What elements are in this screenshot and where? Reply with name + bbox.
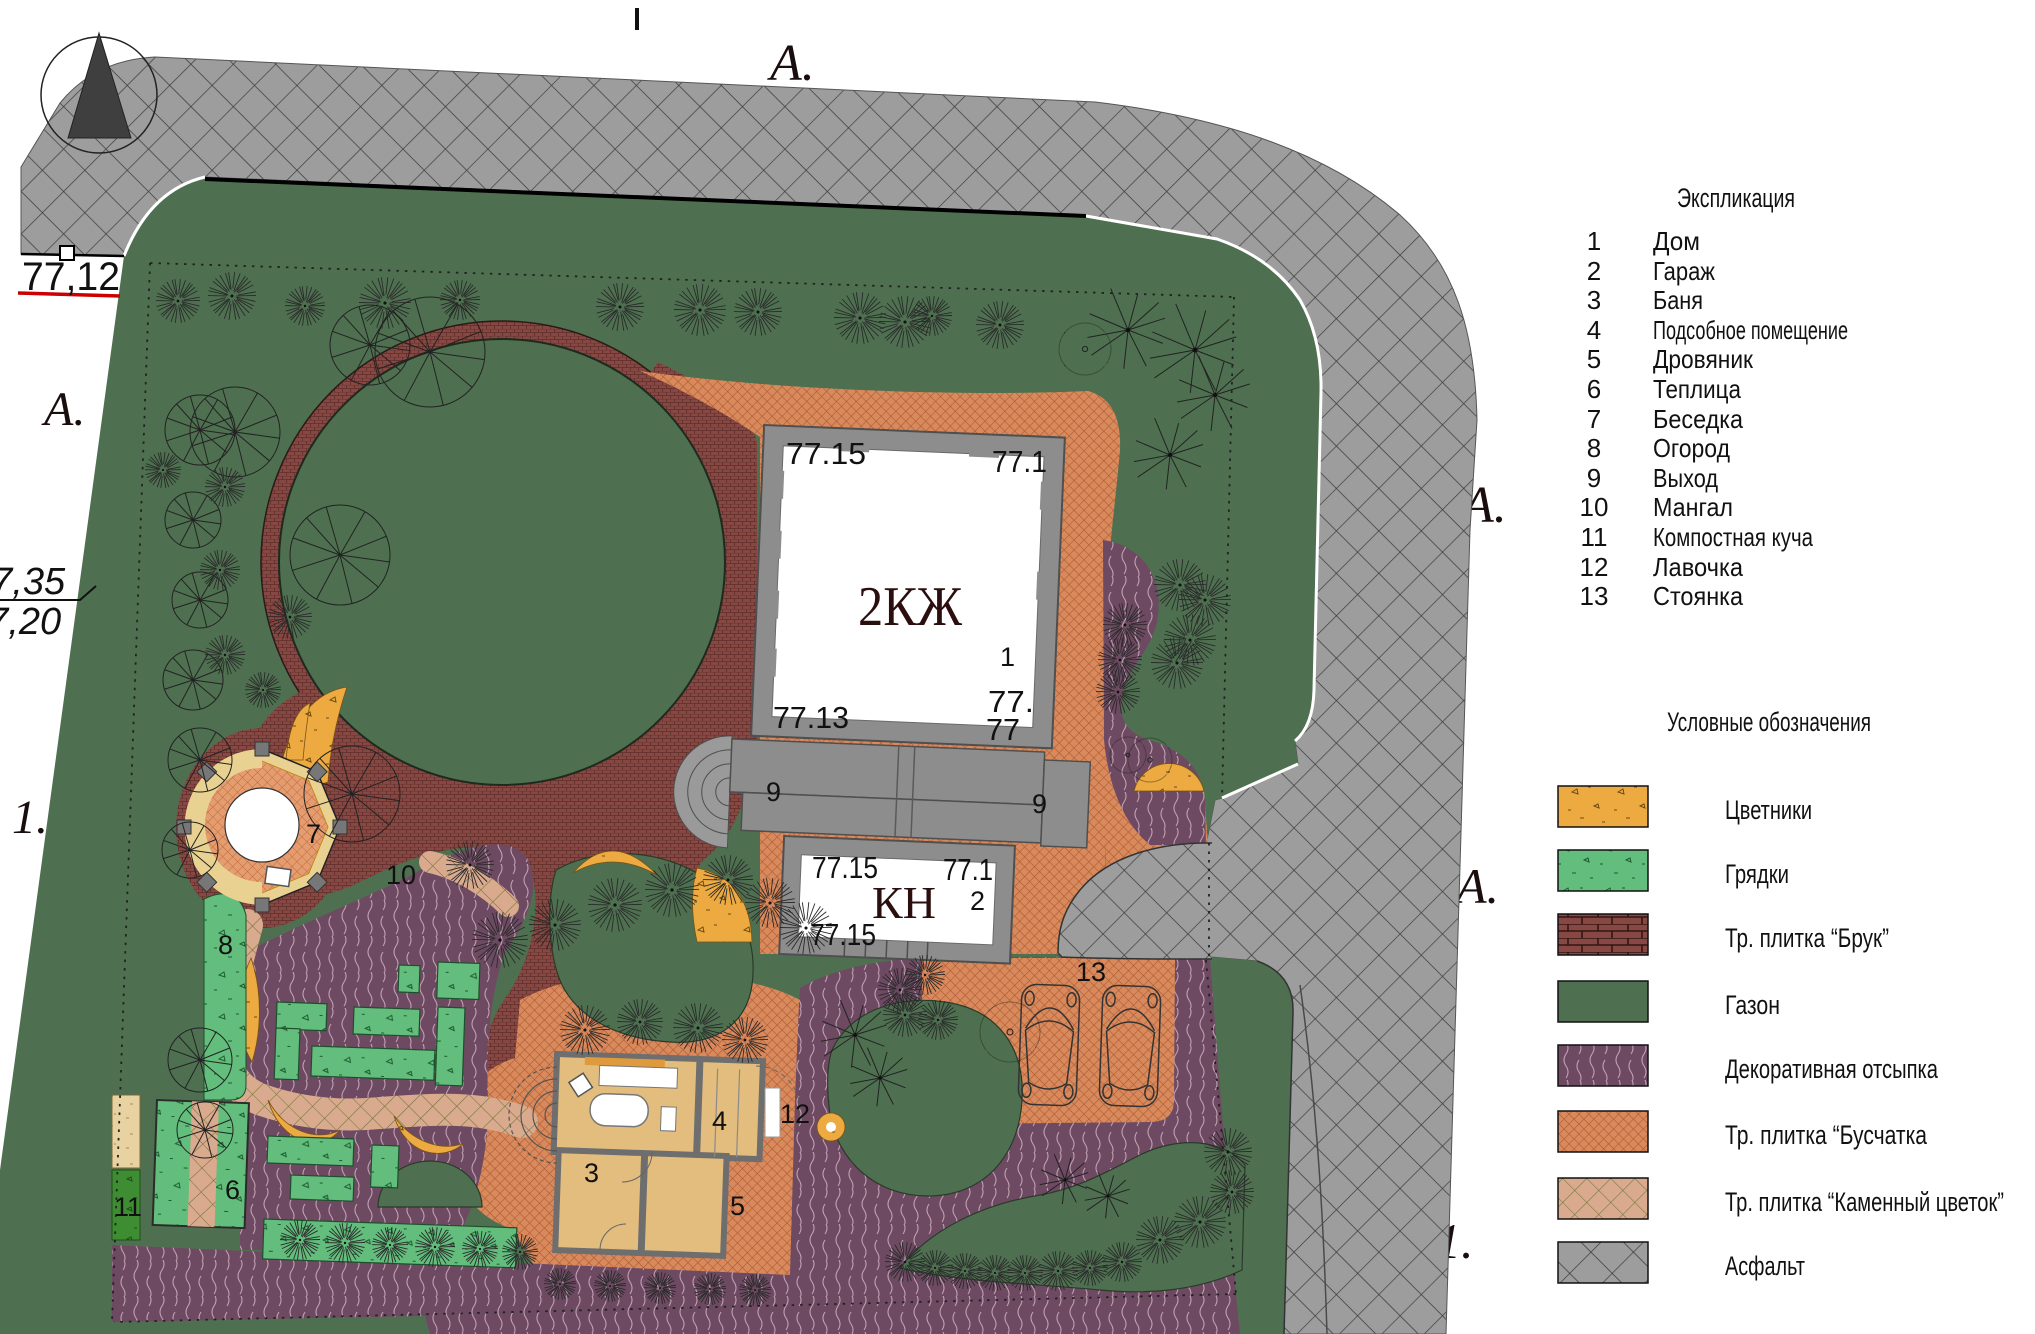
svg-text:Тр. плитка “Брук”: Тр. плитка “Брук”	[1725, 923, 1889, 953]
svg-text:А.: А.	[41, 383, 85, 436]
svg-text:Выход: Выход	[1653, 463, 1718, 493]
svg-text:Декоративная отсыпка: Декоративная отсыпка	[1725, 1054, 1939, 1084]
svg-text:77.15: 77.15	[812, 850, 878, 885]
svg-text:1.: 1.	[12, 791, 48, 844]
svg-text:Компостная куча: Компостная куча	[1653, 522, 1813, 552]
svg-text:Огород: Огород	[1653, 433, 1730, 463]
svg-text:Тр. плитка “Каменный цветок”: Тр. плитка “Каменный цветок”	[1725, 1187, 2004, 1217]
svg-text:Гараж: Гараж	[1653, 256, 1716, 286]
svg-text:Мангал: Мангал	[1653, 492, 1733, 522]
svg-text:6: 6	[225, 1175, 240, 1205]
svg-text:13: 13	[1076, 957, 1106, 987]
svg-text:КН: КН	[872, 877, 936, 928]
svg-text:Дом: Дом	[1653, 226, 1700, 256]
svg-text:Газон: Газон	[1725, 990, 1780, 1020]
svg-text:9: 9	[766, 777, 781, 807]
svg-text:77.15: 77.15	[810, 917, 876, 952]
svg-text:Стоянка: Стоянка	[1653, 581, 1743, 611]
svg-text:Беседка: Беседка	[1653, 404, 1743, 434]
svg-text:1: 1	[1587, 226, 1601, 256]
svg-text:Экспликация: Экспликация	[1677, 183, 1795, 213]
svg-text:5: 5	[1587, 344, 1601, 374]
svg-text:8: 8	[218, 930, 233, 960]
svg-text:2: 2	[970, 886, 985, 916]
svg-text:77,35: 77,35	[0, 561, 66, 603]
svg-text:Тр. плитка “Бусчатка: Тр. плитка “Бусчатка	[1725, 1120, 1928, 1150]
svg-text:9: 9	[1032, 789, 1047, 819]
svg-text:5: 5	[730, 1191, 745, 1221]
svg-text:77: 77	[986, 712, 1020, 747]
svg-text:77.13: 77.13	[773, 700, 849, 735]
svg-text:Условные обозначения: Условные обозначения	[1667, 707, 1871, 737]
svg-text:Грядки: Грядки	[1725, 859, 1789, 889]
svg-text:77.15: 77.15	[786, 436, 866, 471]
svg-text:7: 7	[1587, 404, 1601, 434]
svg-text:4: 4	[1587, 315, 1601, 345]
svg-text:77,12: 77,12	[22, 255, 120, 299]
svg-text:13: 13	[1580, 581, 1609, 611]
svg-text:11: 11	[114, 1192, 142, 1222]
svg-text:А.: А.	[767, 35, 815, 92]
svg-text:9: 9	[1587, 463, 1601, 493]
svg-text:77,20: 77,20	[0, 601, 61, 643]
svg-text:2КЖ: 2КЖ	[858, 576, 963, 638]
svg-text:Дровяник: Дровяник	[1653, 344, 1754, 374]
svg-text:4: 4	[712, 1106, 727, 1136]
svg-text:12: 12	[1580, 552, 1609, 582]
svg-text:2: 2	[1587, 256, 1601, 286]
svg-text:Теплица: Теплица	[1653, 374, 1741, 404]
svg-text:77.1: 77.1	[992, 444, 1047, 479]
svg-text:Подсобное помещение: Подсобное помещение	[1653, 315, 1848, 345]
svg-text:3: 3	[1587, 285, 1601, 315]
svg-text:11: 11	[1581, 522, 1608, 552]
svg-text:Цветники: Цветники	[1725, 795, 1812, 825]
svg-text:Баня: Баня	[1653, 285, 1703, 315]
svg-text:3: 3	[584, 1158, 599, 1188]
svg-text:12: 12	[780, 1099, 810, 1129]
svg-text:7: 7	[306, 819, 321, 849]
svg-text:8: 8	[1587, 433, 1601, 463]
svg-text:Асфальт: Асфальт	[1725, 1251, 1805, 1281]
svg-text:10: 10	[1580, 492, 1609, 522]
svg-text:77.1: 77.1	[943, 852, 993, 887]
svg-text:10: 10	[386, 860, 416, 890]
svg-text:Лавочка: Лавочка	[1653, 552, 1743, 582]
svg-text:6: 6	[1587, 374, 1601, 404]
svg-text:1: 1	[1000, 642, 1015, 672]
